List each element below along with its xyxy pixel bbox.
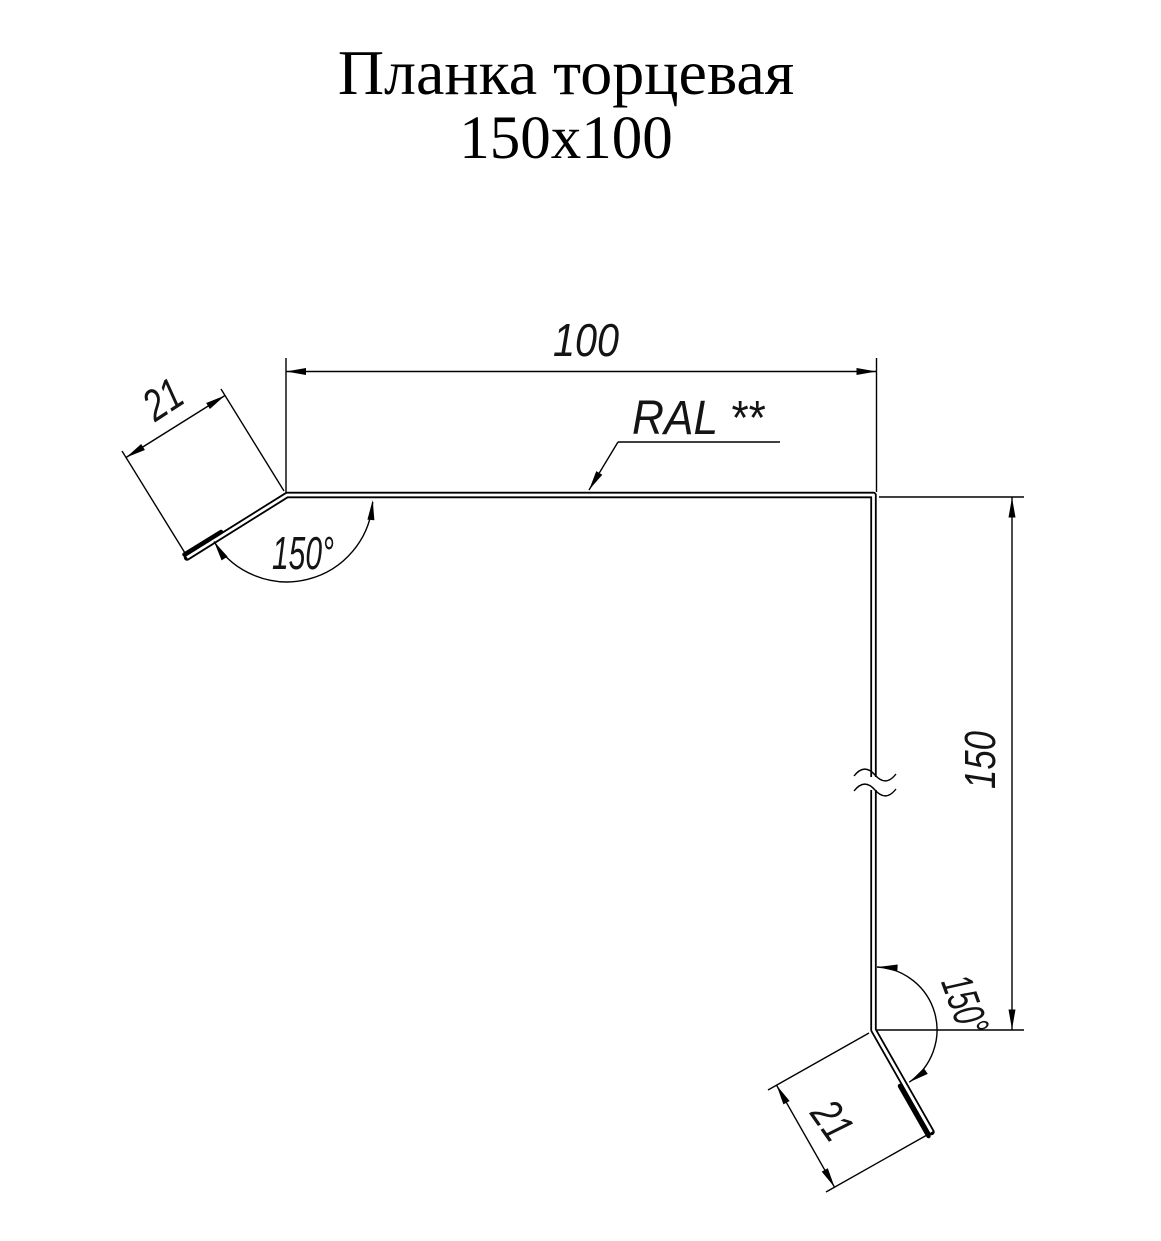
dim-side-height-label: 150 bbox=[956, 731, 1005, 789]
profile-outline-outer bbox=[187, 495, 932, 1132]
arrow-top-width-left bbox=[286, 368, 306, 375]
arrow-top-width-right bbox=[857, 368, 877, 375]
coating-label: RAL ** bbox=[632, 392, 765, 445]
arrow-side-height-bottom bbox=[1009, 1010, 1016, 1030]
bottom-flange-hem bbox=[900, 1086, 929, 1136]
arrow-arc-left-start bbox=[214, 542, 228, 561]
arrow-bottom-flange-upper bbox=[777, 1085, 790, 1104]
ext-line-flange-corner bbox=[221, 389, 284, 491]
arrow-side-height-top bbox=[1009, 498, 1016, 518]
ext-line-flange-end bbox=[122, 451, 185, 553]
ext-line-bottom-corner bbox=[768, 1033, 869, 1090]
arrow-arc-bottom-end bbox=[909, 1068, 928, 1082]
profile-outline-inner bbox=[187, 495, 932, 1132]
arrow-bottom-flange-lower bbox=[822, 1168, 835, 1187]
profile bbox=[185, 495, 932, 1136]
dimension-lines bbox=[122, 358, 1024, 1192]
technical-drawing: 100 21 150° RAL ** 150 150° 21 bbox=[0, 0, 1161, 1241]
dim-top-angle-label: 150° bbox=[272, 527, 334, 579]
ext-line-bottom-end bbox=[826, 1135, 927, 1192]
drawing-page: Планка торцевая 150x100 bbox=[0, 0, 1161, 1241]
dim-top-width-label: 100 bbox=[553, 314, 619, 366]
arrow-top-flange-upper bbox=[206, 396, 225, 410]
arrow-arc-bottom-start bbox=[878, 965, 898, 972]
arrow-leader-coating bbox=[589, 471, 602, 490]
arrow-top-flange-lower bbox=[126, 444, 145, 458]
dim-bottom-flange-label: 21 bbox=[800, 1090, 862, 1150]
arrow-arc-left-end bbox=[367, 500, 374, 520]
angle-arc-bottom bbox=[877, 967, 937, 1082]
